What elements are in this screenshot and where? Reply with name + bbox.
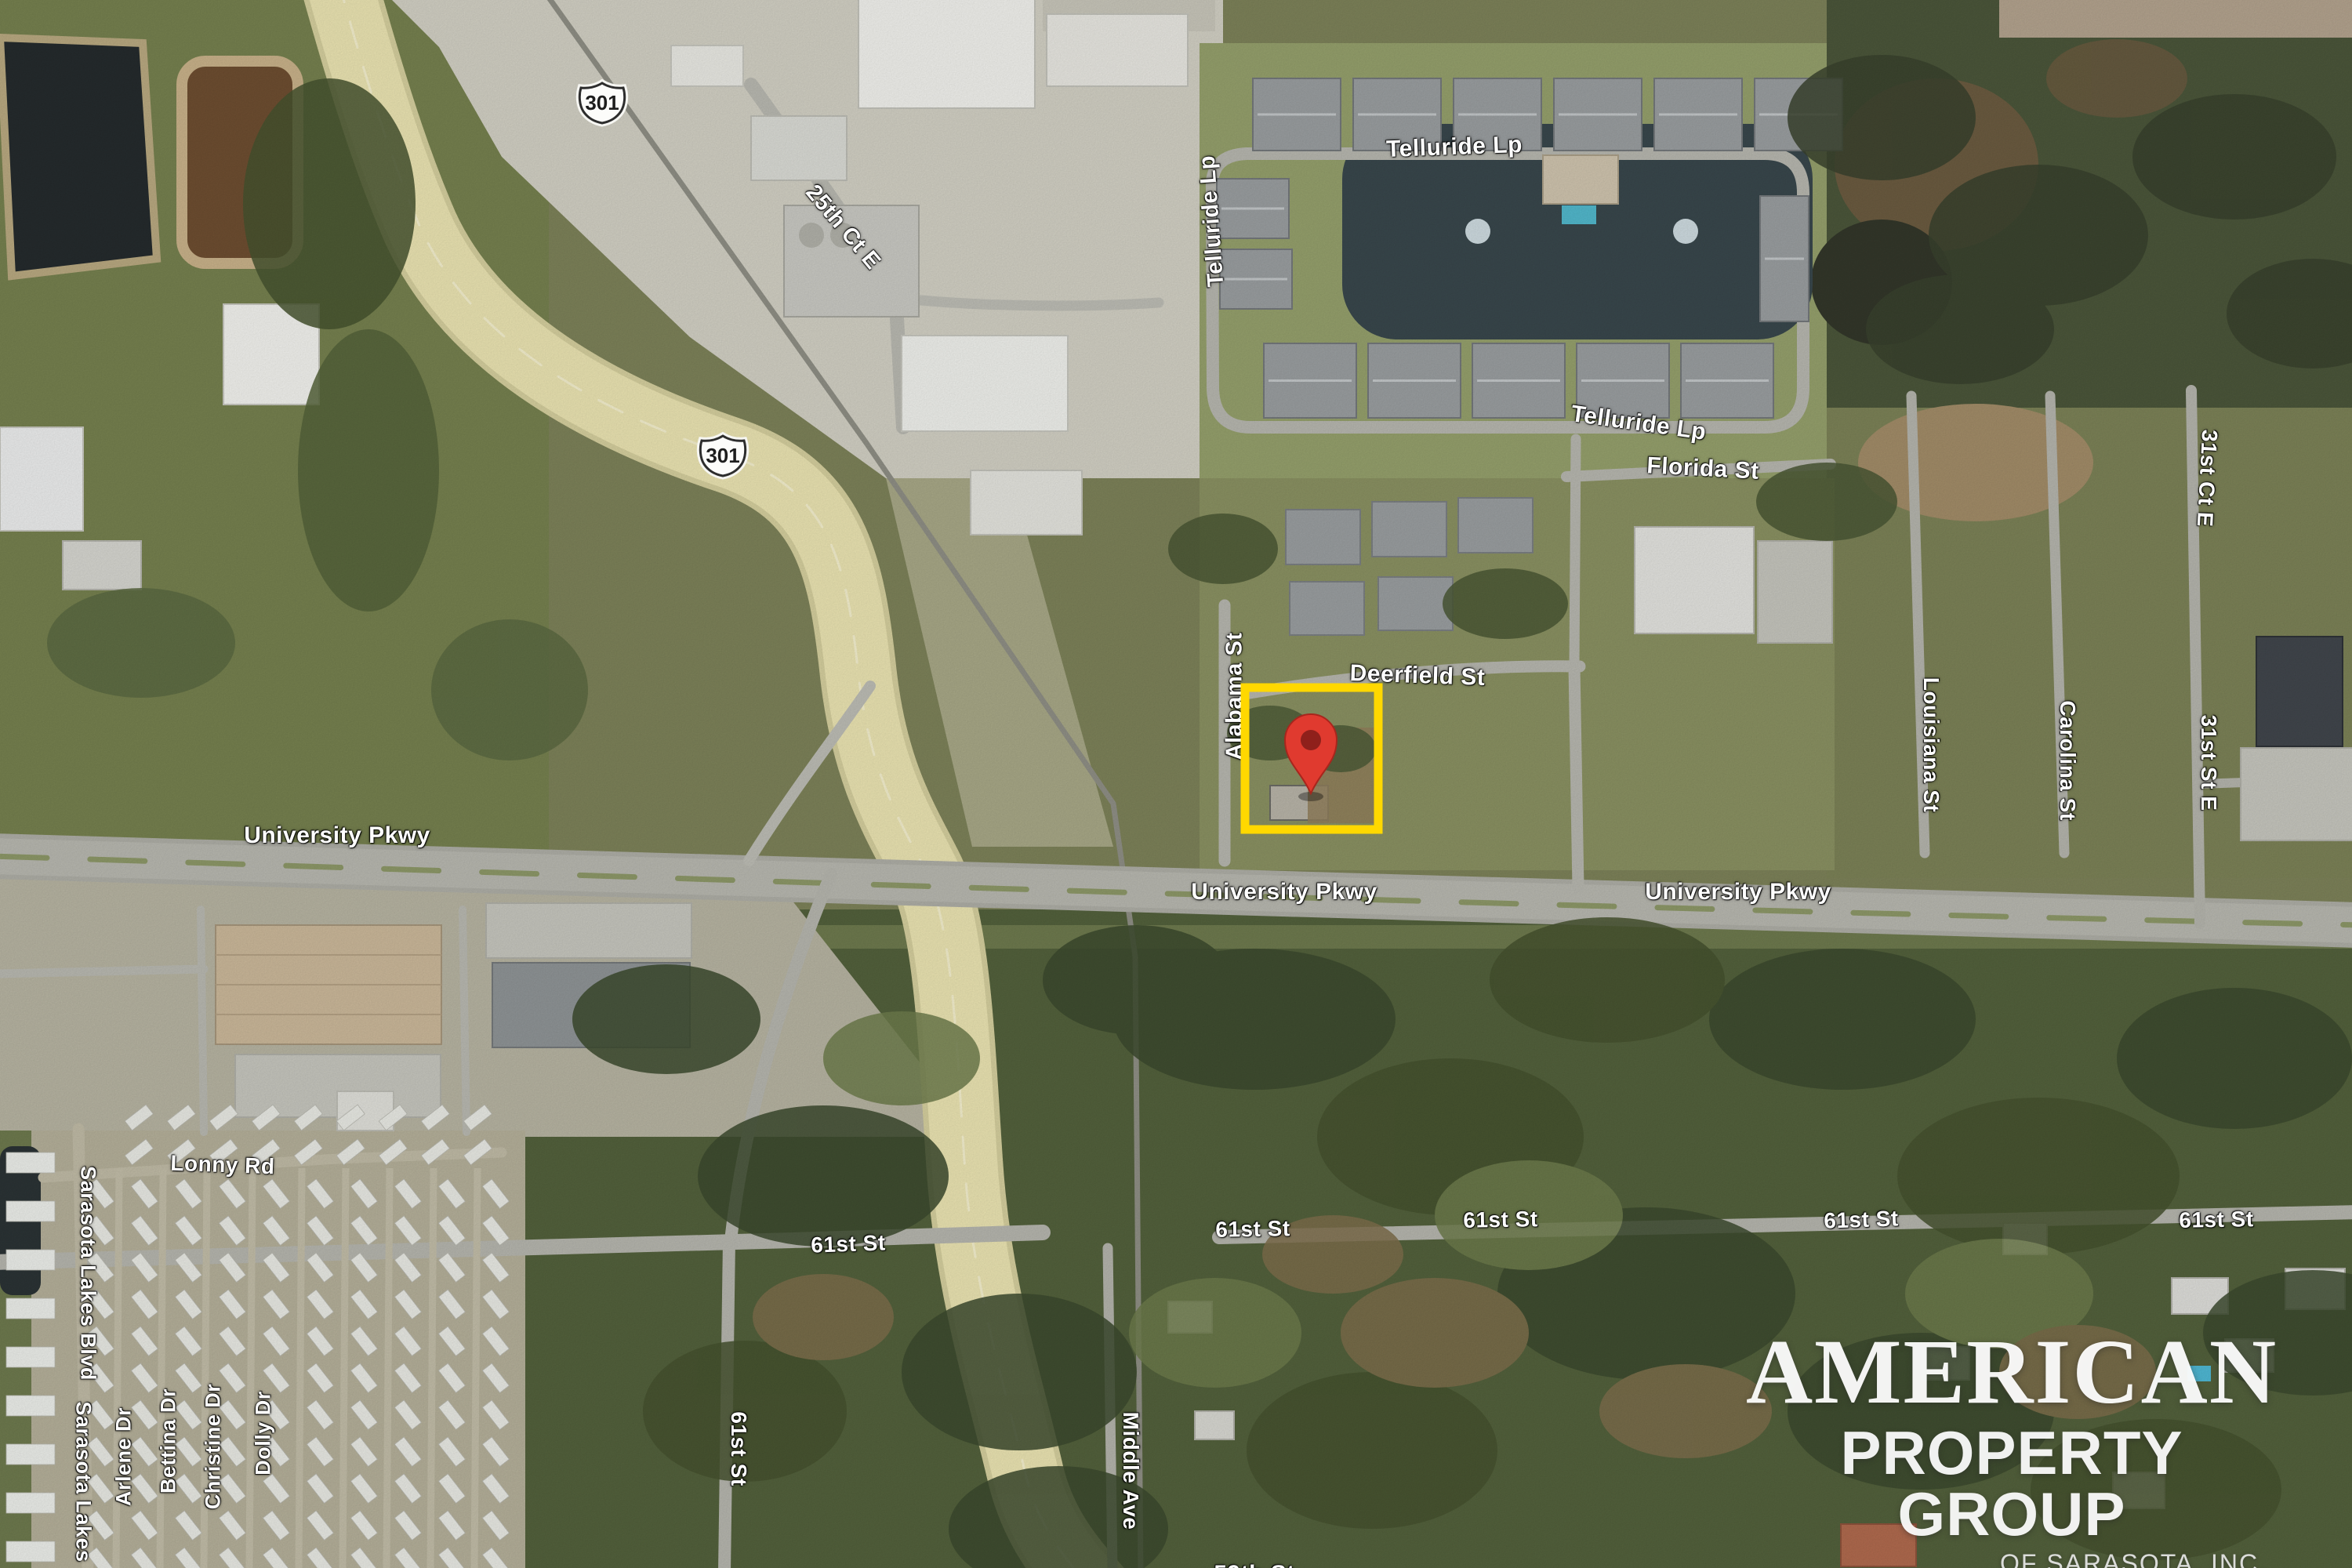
route-shield-number: 301 xyxy=(585,91,619,114)
satellite-map[interactable]: Telluride LpTelluride LpTelluride LpFlor… xyxy=(0,0,2352,1568)
location-pin-hole xyxy=(1301,730,1321,750)
route-shield-number: 301 xyxy=(706,444,739,467)
location-pin-icon xyxy=(1285,714,1337,793)
annotation-overlay: 301301 xyxy=(0,0,2352,1568)
route-shield-301: 301 xyxy=(700,436,745,476)
route-shield-301: 301 xyxy=(579,83,624,123)
